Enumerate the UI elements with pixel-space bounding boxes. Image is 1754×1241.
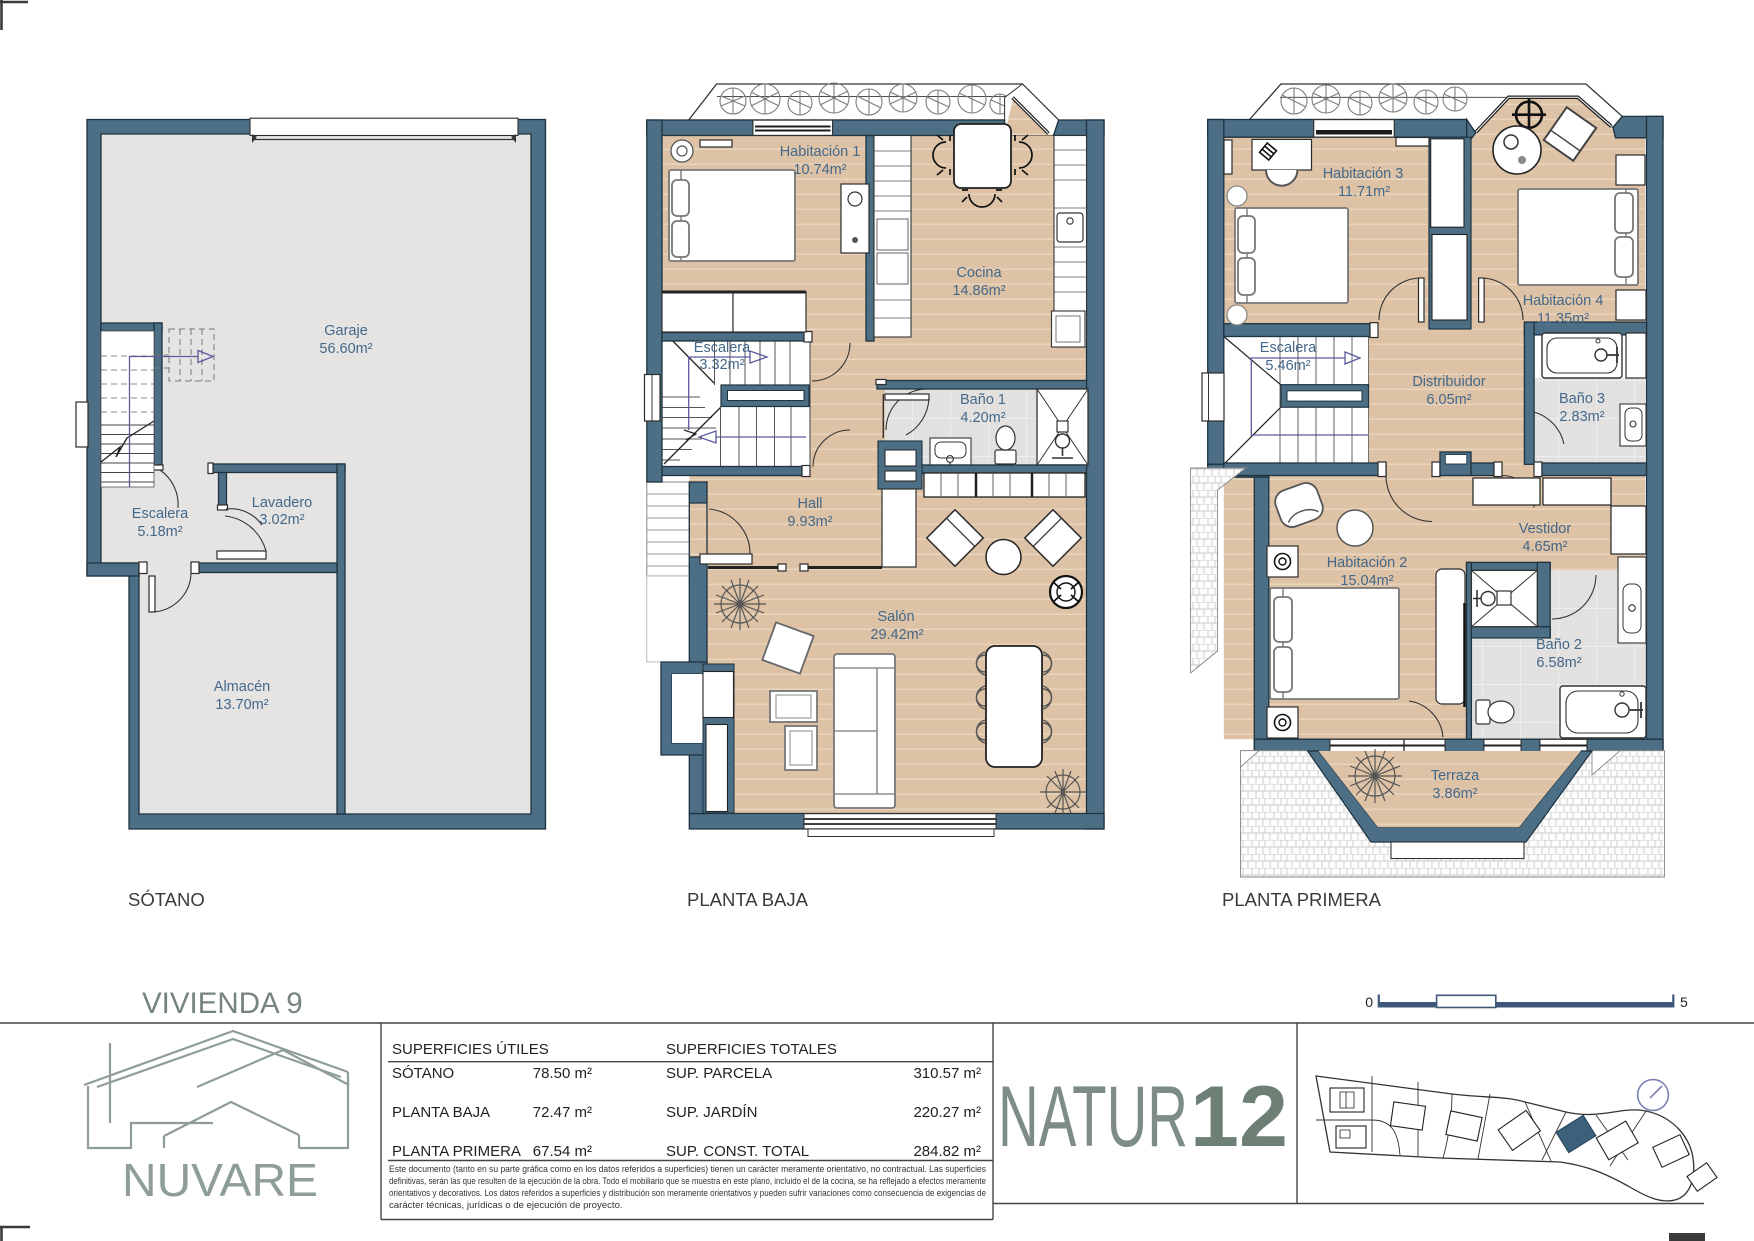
svg-text:PLANTA BAJA: PLANTA BAJA (687, 889, 809, 910)
svg-text:5: 5 (1680, 994, 1688, 1010)
svg-text:SUPERFICIES TOTALES: SUPERFICIES TOTALES (666, 1041, 837, 1058)
svg-text:78.50 m²: 78.50 m² (533, 1065, 592, 1082)
svg-text:6.05m²: 6.05m² (1426, 392, 1471, 408)
svg-text:10.74m²: 10.74m² (793, 162, 846, 178)
svg-text:NUVARE: NUVARE (122, 1154, 318, 1206)
svg-text:Distribuidor: Distribuidor (1412, 374, 1485, 390)
svg-text:13.70m²: 13.70m² (215, 697, 268, 713)
svg-text:Este documento (tanto en su pa: Este documento (tanto en su parte gráfic… (389, 1164, 986, 1175)
svg-text:Escalera: Escalera (132, 506, 189, 522)
svg-text:Garaje: Garaje (324, 323, 368, 339)
svg-text:220.27 m²: 220.27 m² (913, 1104, 981, 1121)
svg-text:SUPERFICIES ÚTILES: SUPERFICIES ÚTILES (392, 1041, 549, 1058)
svg-text:Habitación 1: Habitación 1 (780, 144, 861, 160)
svg-text:NATUR: NATUR (998, 1069, 1188, 1165)
svg-text:Vestidor: Vestidor (1519, 521, 1572, 537)
svg-text:4.20m²: 4.20m² (960, 410, 1005, 426)
svg-text:9.93m²: 9.93m² (787, 514, 832, 530)
svg-text:Salón: Salón (877, 609, 914, 625)
svg-text:PLANTA BAJA: PLANTA BAJA (392, 1104, 490, 1121)
svg-text:6.58m²: 6.58m² (1536, 655, 1581, 671)
svg-text:SÓTANO: SÓTANO (128, 889, 205, 910)
svg-text:carácter técnicas, jurídicas o: carácter técnicas, jurídicas o de ejecuc… (389, 1200, 623, 1211)
svg-text:72.47 m²: 72.47 m² (533, 1104, 592, 1121)
svg-text:definitivas, serán las que res: definitivas, serán las que resulten de l… (389, 1176, 986, 1187)
svg-text:Baño 1: Baño 1 (960, 392, 1006, 408)
svg-text:Escalera: Escalera (1260, 340, 1317, 356)
svg-text:11.35m²: 11.35m² (1537, 311, 1589, 327)
svg-text:284.82 m²: 284.82 m² (913, 1143, 981, 1160)
svg-text:Habitación 3: Habitación 3 (1323, 166, 1404, 182)
svg-text:5.46m²: 5.46m² (1265, 358, 1310, 374)
svg-text:3.86m²: 3.86m² (1432, 786, 1477, 802)
svg-text:Habitación 2: Habitación 2 (1327, 555, 1408, 571)
svg-text:Habitación 4: Habitación 4 (1523, 293, 1604, 309)
svg-text:310.57 m²: 310.57 m² (913, 1065, 981, 1082)
svg-text:14.86m²: 14.86m² (952, 283, 1005, 299)
svg-text:Cocina: Cocina (956, 265, 1002, 281)
svg-text:PLANTA PRIMERA: PLANTA PRIMERA (1222, 889, 1382, 910)
svg-text:SUP. CONST. TOTAL: SUP. CONST. TOTAL (666, 1143, 809, 1160)
svg-text:15.04m²: 15.04m² (1340, 573, 1393, 589)
svg-text:SUP. PARCELA: SUP. PARCELA (666, 1065, 772, 1082)
svg-text:SÓTANO: SÓTANO (392, 1065, 454, 1082)
svg-text:Lavadero: Lavadero (252, 495, 312, 511)
svg-text:Baño 3: Baño 3 (1559, 391, 1605, 407)
svg-text:0: 0 (1365, 994, 1373, 1010)
svg-text:Terraza: Terraza (1431, 768, 1480, 784)
svg-text:3.32m²: 3.32m² (699, 357, 744, 373)
svg-text:Hall: Hall (798, 496, 823, 512)
svg-text:5.18m²: 5.18m² (137, 524, 182, 540)
svg-text:3.02m²: 3.02m² (259, 512, 304, 528)
svg-text:2.83m²: 2.83m² (1559, 409, 1604, 425)
svg-text:56.60m²: 56.60m² (319, 341, 372, 357)
svg-text:67.54 m²: 67.54 m² (533, 1143, 592, 1160)
svg-text:29.42m²: 29.42m² (870, 627, 923, 643)
svg-text:4.65m²: 4.65m² (1522, 539, 1567, 555)
svg-text:orientativos y decorativos. Lo: orientativos y decorativos. Los datos re… (389, 1188, 986, 1199)
svg-text:VIVIENDA 9: VIVIENDA 9 (142, 987, 303, 1020)
svg-text:SUP. JARDÍN: SUP. JARDÍN (666, 1104, 757, 1121)
svg-text:PLANTA PRIMERA: PLANTA PRIMERA (392, 1143, 521, 1160)
svg-text:Baño 2: Baño 2 (1536, 637, 1582, 653)
svg-text:Escalera: Escalera (694, 340, 751, 356)
svg-text:Almacén: Almacén (214, 679, 270, 695)
svg-text:12: 12 (1190, 1069, 1288, 1165)
svg-text:11.71m²: 11.71m² (1338, 184, 1390, 200)
